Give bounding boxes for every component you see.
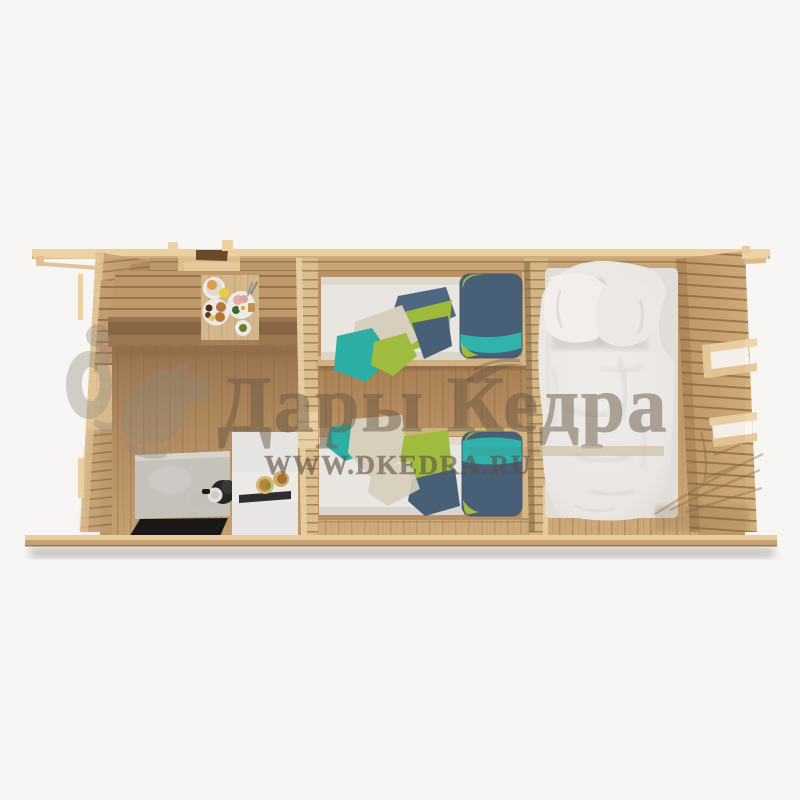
- svg-text:Дары Кедра: Дары Кедра: [218, 362, 669, 449]
